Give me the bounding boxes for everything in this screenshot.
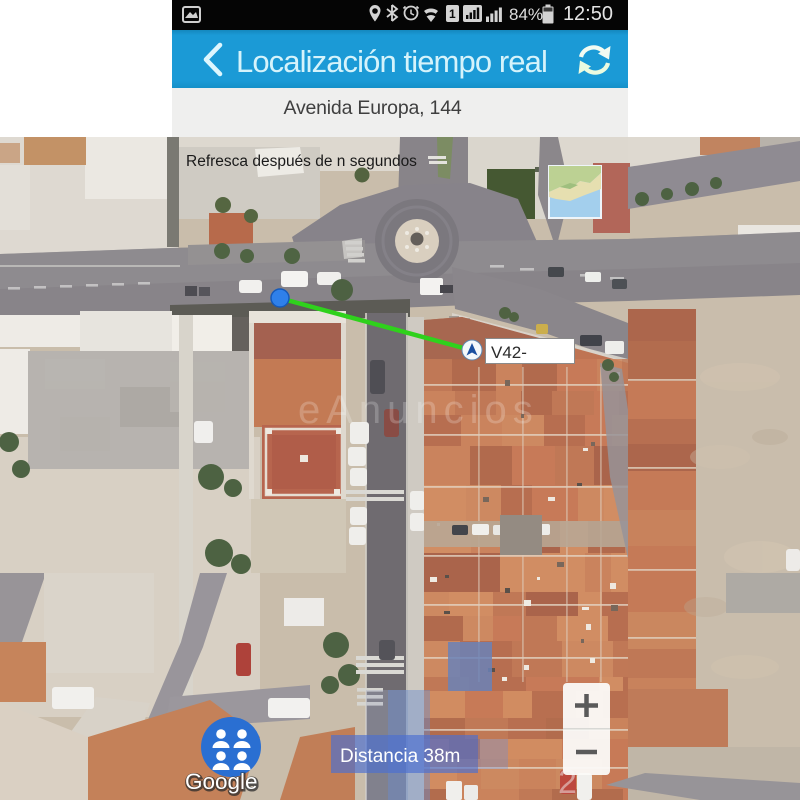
svg-text:V42-: V42-: [491, 343, 527, 362]
svg-text:eAnuncios: eAnuncios: [298, 388, 539, 432]
svg-text:Refresca después de n segundos: Refresca después de n segundos: [186, 153, 417, 170]
svg-text:1: 1: [449, 7, 456, 21]
svg-text:Google: Google: [185, 769, 258, 794]
svg-text:Distancia 38m: Distancia 38m: [340, 746, 460, 767]
